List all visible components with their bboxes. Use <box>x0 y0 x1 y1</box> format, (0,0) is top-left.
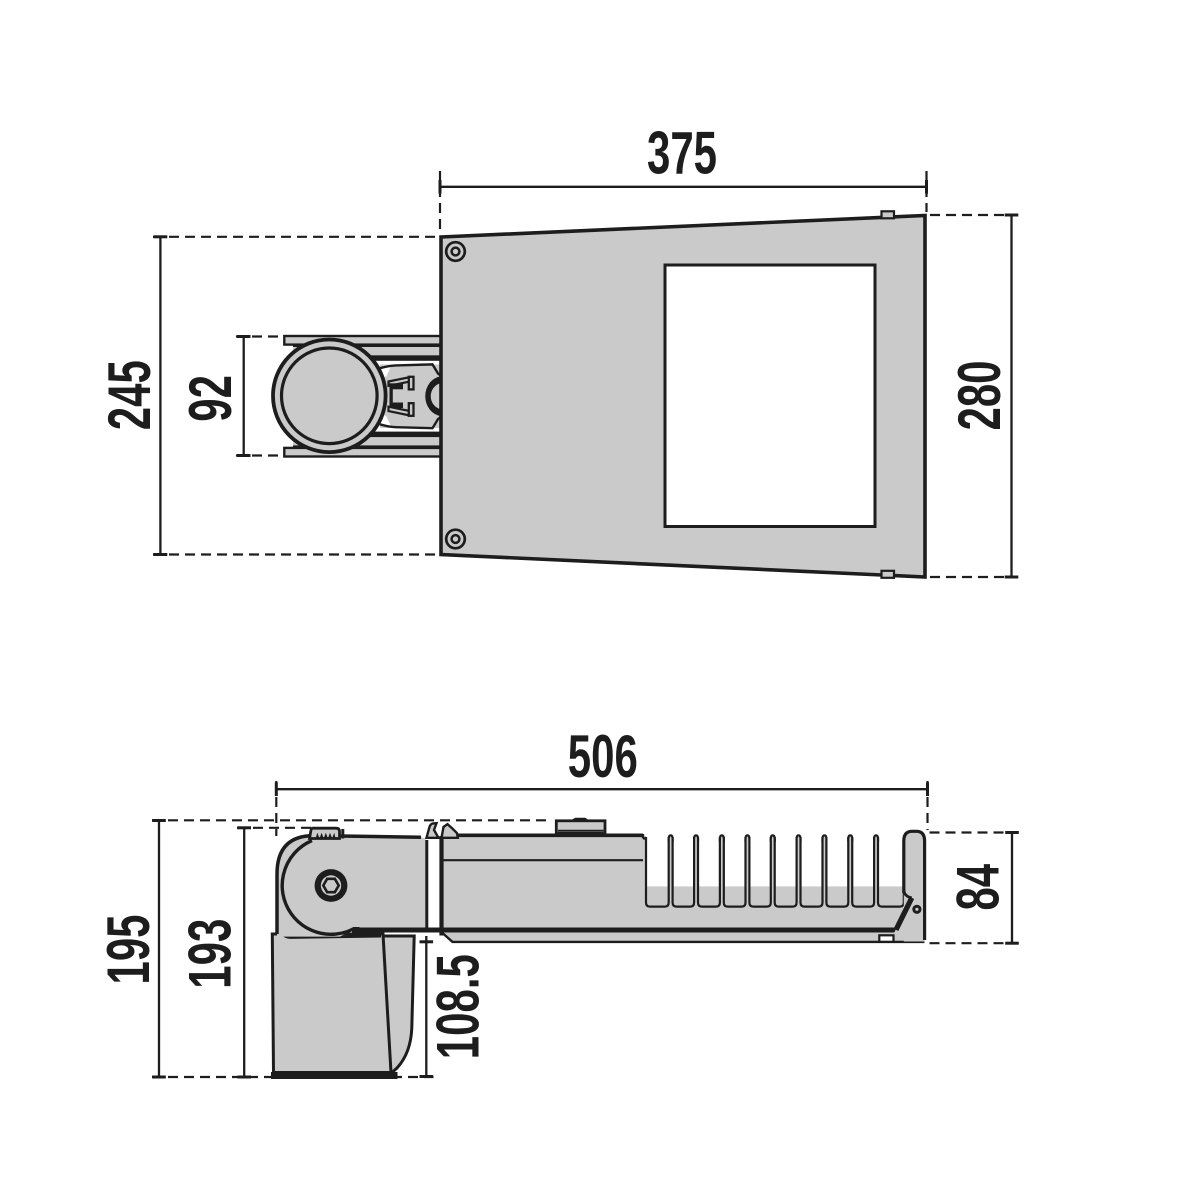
svg-text:375: 375 <box>647 119 717 186</box>
svg-text:245: 245 <box>96 360 163 430</box>
svg-text:193: 193 <box>176 919 243 989</box>
svg-text:108.5: 108.5 <box>424 954 491 1059</box>
svg-text:84: 84 <box>944 864 1011 911</box>
svg-text:92: 92 <box>177 375 244 422</box>
svg-text:195: 195 <box>95 914 162 984</box>
svg-text:280: 280 <box>946 360 1013 430</box>
svg-text:506: 506 <box>568 722 638 789</box>
